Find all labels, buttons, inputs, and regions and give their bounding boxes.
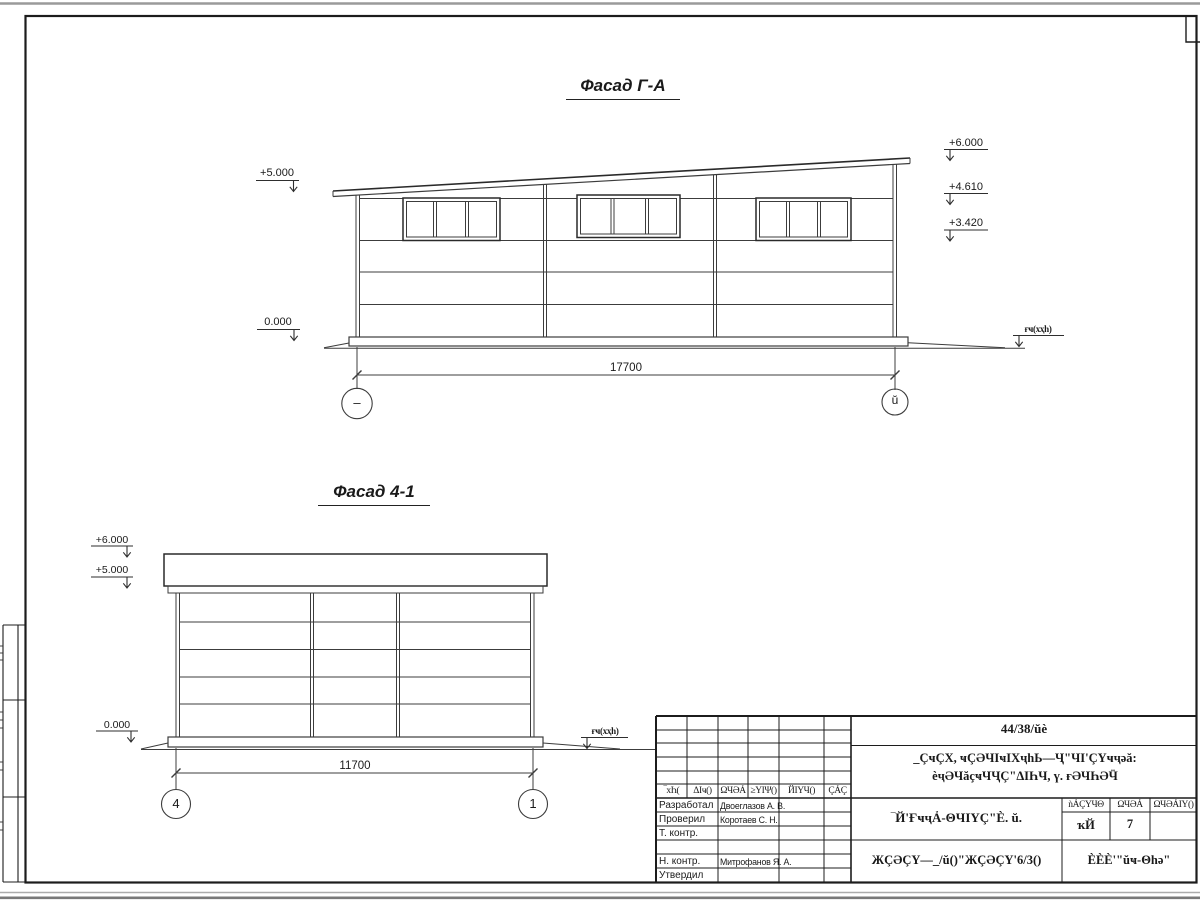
rev-header-dok: ≥ΥӀΨ() (748, 786, 779, 797)
ground-level-label: ғҹ(хҳһ) (1010, 324, 1066, 334)
corner-box (1186, 17, 1200, 42)
ribbon-window-1 (403, 198, 500, 241)
drawing-sheet: Фасад Г-А +5.000 0.000 +6.000 +4.610 +3.… (0, 0, 1200, 900)
facade-41-title: Фасад 4-1 (318, 482, 430, 506)
facade-ga-dimension (342, 347, 908, 419)
elevation-mark-plus6000-f2: +6.000 (88, 534, 136, 546)
rev-header-izm: ‾хҺ( (656, 786, 687, 797)
role-nkontr: Н. контр. (659, 856, 717, 868)
dimension-17700: 17700 (590, 362, 662, 375)
rev-header-data: ÇẢÇ (824, 786, 851, 797)
ribbon-window-2 (577, 195, 680, 238)
stadia-value: ҡЙ (1063, 818, 1109, 832)
ribbon-window-3 (756, 198, 851, 241)
doc-title: ‾Й'ҒҹҷẢ-ΘЧӀΥÇ"Ѐ. ŭ. (853, 811, 1060, 826)
project-name-line1: _ÇҹÇХ, ҹÇӘЧӀҹӀХҷһЬ—Ҷ"ЧӀ'ÇҮҹҷәă: (856, 751, 1194, 765)
axis-label-right: ŭ (882, 394, 908, 408)
ground-level-label-f2: ғҹ(хҳһ) (578, 726, 632, 736)
role-razrabotal: Разработал (659, 800, 717, 812)
dimension-11700: 11700 (320, 760, 390, 773)
project-name-line2: ѐҷӘЧăҫҹЧҶÇ"ΔӀҺЧ, ү. ғӘЧҺӘӴ (856, 769, 1194, 783)
axis-label-1: 1 (519, 797, 547, 812)
rev-header-podp: ЙӀҮЧ() (779, 786, 824, 797)
list-header: ΩЧӘẢ (1111, 800, 1149, 811)
rev-header-koluch: ΔӀҹ() (687, 786, 718, 797)
elevation-mark-plus5000: +5.000 (254, 167, 300, 180)
facade-41-dimension (162, 748, 548, 819)
elevation-mark-plus4610: +4.610 (942, 181, 990, 194)
elevation-mark-plus5000-f2: +5.000 (88, 564, 136, 576)
name-nkontr: Митрофанов Я. А. (720, 857, 778, 867)
elevation-mark-plus6000: +6.000 (942, 137, 990, 150)
role-proveril: Проверил (659, 814, 717, 826)
stage-line: ЖÇӘÇΥ—_/ŭ()"ЖÇӘÇΥ'6/3() (853, 853, 1060, 867)
elevation-mark-0000: 0.000 (256, 316, 300, 329)
facade-ga-title: Фасад Г-А (566, 76, 680, 100)
axis-label-4: 4 (162, 797, 190, 812)
name-razrabotal: Двоеглазов А. В. (720, 801, 778, 811)
facade-ga-elevation-marks (256, 150, 1064, 347)
doc-number: 44/38/ŭè (854, 722, 1194, 737)
listov-header: ΩЧӘẢӀΥ() (1151, 800, 1196, 811)
facade-ga-drawing (324, 158, 1025, 348)
organization: ЀЀЀ'"ŭҹ-Θһә" (1063, 853, 1195, 867)
rev-header-list: ΩЧӘẢ (718, 786, 748, 797)
role-utverdil: Утвердил (659, 870, 717, 882)
stadia-header: ǹẢÇΥЧΘ (1063, 800, 1109, 811)
left-stamp-marks (0, 646, 3, 830)
left-margin-stamp (0, 625, 26, 882)
facade-41-drawing (141, 554, 655, 750)
name-proveril: Коротаев С. Н. (720, 815, 778, 825)
role-tkontr: Т. контр. (659, 828, 717, 840)
list-value: 7 (1111, 817, 1149, 831)
axis-label-left: – (342, 396, 372, 411)
elevation-mark-plus3420: +3.420 (942, 217, 990, 230)
elevation-mark-0000-f2: 0.000 (93, 719, 141, 731)
